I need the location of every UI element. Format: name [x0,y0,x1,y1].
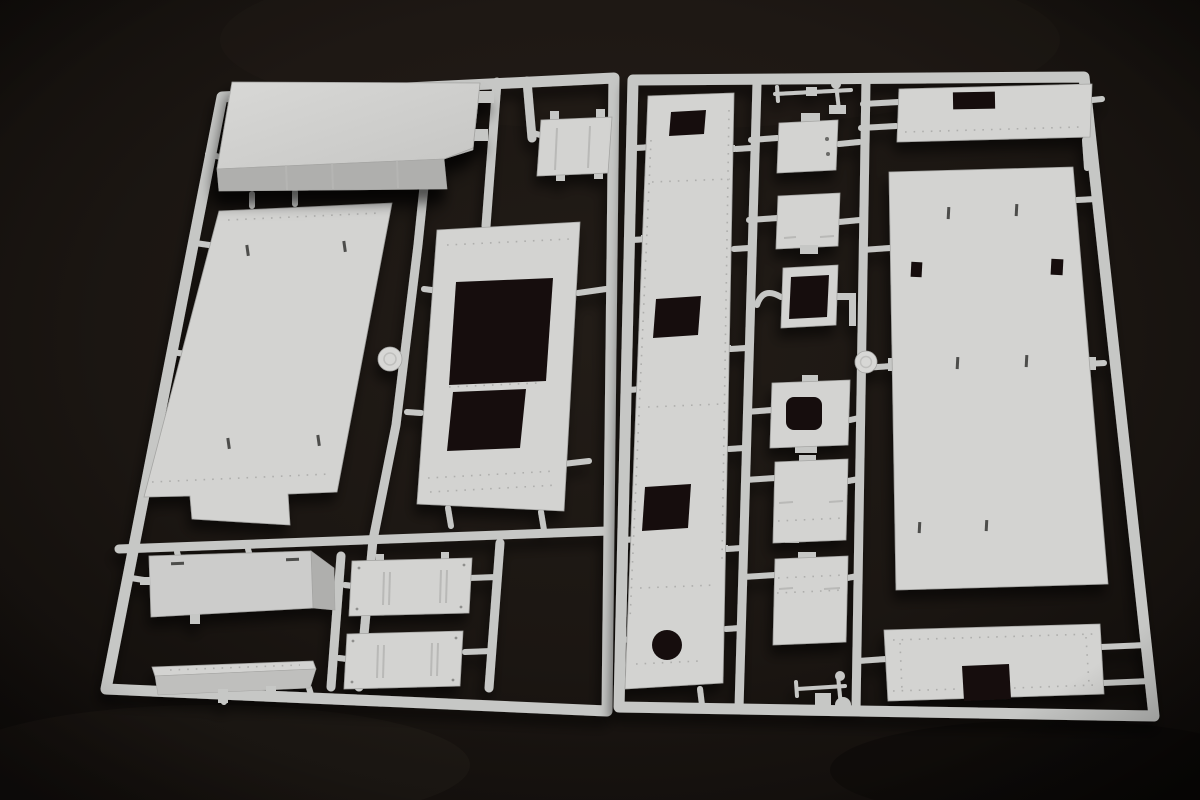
vignette-overlay [0,0,1200,800]
photo-stage [0,0,1200,800]
sprue-photo [0,0,1200,800]
